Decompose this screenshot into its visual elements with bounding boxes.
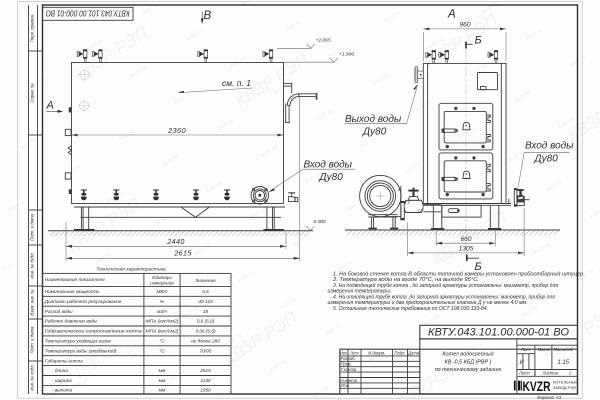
svg-text:ЗАВОД РЭП: ЗАВОД РЭП <box>553 385 576 390</box>
svg-text:Справ. №: Справ. № <box>30 83 35 103</box>
svg-text:А: А <box>46 100 54 112</box>
svg-text:Единицы: Единицы <box>152 275 172 280</box>
svg-text:И: И <box>520 360 525 366</box>
svg-text:Вход воды: Вход воды <box>304 160 353 171</box>
svg-text:Изм.: Изм. <box>340 350 347 355</box>
svg-text:40-110: 40-110 <box>198 299 213 304</box>
svg-text:Формат А3: Формат А3 <box>537 395 562 400</box>
svg-text:KVZR: KVZR <box>523 379 551 394</box>
svg-text:Взам. инв. №: Взам. инв. № <box>30 289 35 316</box>
svg-text:Выход воды: Выход воды <box>345 114 402 125</box>
svg-text:Лист: Лист <box>518 371 530 376</box>
svg-text:0,5: 0,5 <box>202 289 209 294</box>
svg-text:Утв.: Утв. <box>341 383 351 388</box>
svg-text:Ду80: Ду80 <box>534 154 559 165</box>
svg-text:Инв. № подл.: Инв. № подл. <box>30 364 35 391</box>
svg-text:2615: 2615 <box>199 368 211 373</box>
svg-text:Подп.: Подп. <box>394 350 405 355</box>
svg-text:КВТУ.043.101.00.000-01 ВО: КВТУ.043.101.00.000-01 ВО <box>428 327 569 339</box>
svg-text:1305: 1305 <box>459 246 474 253</box>
svg-text:МВт: МВт <box>157 289 168 294</box>
svg-text:Подп. и дата: Подп. и дата <box>30 213 35 241</box>
svg-text:Вход воды: Вход воды <box>525 141 574 152</box>
svg-text:Номинальная мощность: Номинальная мощность <box>45 289 100 294</box>
svg-text:Подп. и дата: Подп. и дата <box>30 326 35 354</box>
svg-text:2360: 2360 <box>167 126 187 135</box>
svg-text:А: А <box>447 9 456 21</box>
svg-text:Дата: Дата <box>407 350 420 355</box>
svg-text:N докум.: N докум. <box>368 350 385 355</box>
svg-text:70/95: 70/95 <box>200 348 212 353</box>
svg-text:КВ -0,5 КБД (РВР ): КВ -0,5 КБД (РВР ) <box>445 359 492 365</box>
svg-text:Температура уходящих газов: Температура уходящих газов <box>45 339 112 344</box>
svg-text:Габариты котла: Габариты котла <box>45 358 83 363</box>
svg-text:КВТУ.043.101.00.000-01 ВО: КВТУ.043.101.00.000-01 ВО <box>46 9 130 18</box>
svg-text:МПа (кгс/см2): МПа (кгс/см2) <box>146 329 179 334</box>
svg-text:измерения: измерения <box>150 280 174 285</box>
svg-text:1: 1 <box>534 371 536 376</box>
svg-text:2615: 2615 <box>173 249 192 258</box>
svg-text:Расход воды: Расход воды <box>45 309 73 314</box>
svg-text:Т.контр.: Т.контр. <box>341 367 358 372</box>
svg-text:°С: °С <box>159 348 165 353</box>
svg-text:Диапазон рабочего регулировани: Диапазон рабочего регулирования <box>44 299 122 304</box>
svg-text:+1.900: +1.900 <box>339 51 354 57</box>
svg-text:Б: Б <box>475 35 482 47</box>
svg-text:Разраб.: Разраб. <box>341 356 356 361</box>
svg-text:м3/ч: м3/ч <box>157 309 167 314</box>
svg-text:18: 18 <box>203 309 209 314</box>
svg-text:Лист: Лист <box>349 350 359 355</box>
svg-text:Н.контр.: Н.контр. <box>341 378 359 383</box>
svg-text:Техническая характеристика: Техническая характеристика <box>96 266 166 272</box>
svg-text:мм: мм <box>159 368 166 373</box>
svg-text:мм: мм <box>159 388 166 393</box>
svg-text:Ду80: Ду80 <box>362 127 387 138</box>
svg-text:Наименование показателя: Наименование показателя <box>45 277 105 282</box>
svg-text:Масса: Масса <box>538 347 551 352</box>
svg-text:°С: °С <box>159 339 165 344</box>
svg-text:1130: 1130 <box>200 378 210 383</box>
svg-text:- ширина: - ширина <box>52 378 72 383</box>
svg-text:Температура воды (вход/выход): Температура воды (вход/выход) <box>45 348 117 353</box>
svg-text:0,06 (0,6): 0,06 (0,6) <box>195 329 216 334</box>
svg-text:В: В <box>204 10 212 22</box>
svg-text:- длина: - длина <box>52 368 68 373</box>
svg-text:Инв. № дубл.: Инв. № дубл. <box>30 252 35 278</box>
svg-text:МПа (кгс/см2): МПа (кгс/см2) <box>146 319 179 324</box>
svg-text:Лит.: Лит. <box>520 347 531 352</box>
svg-text:1950: 1950 <box>200 388 211 393</box>
svg-text:5. Остальные технические треб: 5. Остальные технические требования по О… <box>333 306 488 312</box>
svg-text:660: 660 <box>460 236 471 243</box>
svg-text:не более 280: не более 280 <box>191 339 220 344</box>
svg-text:Гидравлическое сопротивление к: Гидравлическое сопротивление котла <box>45 329 142 334</box>
svg-text:1:15: 1:15 <box>557 360 569 366</box>
svg-text:КОТЕЛЬНЫЙ: КОТЕЛЬНЫЙ <box>553 380 578 385</box>
svg-text:+2.065: +2.065 <box>316 38 331 44</box>
svg-text:960: 960 <box>459 22 470 29</box>
svg-text:Рабочее давление воды: Рабочее давление воды <box>45 319 98 324</box>
svg-text:Перв. примен.: Перв. примен. <box>30 14 35 43</box>
svg-text:Котел водогрейный: Котел водогрейный <box>442 350 493 357</box>
svg-text:по техническому заданию: по техническому заданию <box>435 367 502 373</box>
svg-text:Пров.: Пров. <box>341 362 352 367</box>
svg-text:0.000: 0.000 <box>314 219 327 225</box>
svg-text:Листов: Листов <box>542 371 559 376</box>
svg-text:Масштаб: Масштаб <box>554 347 574 352</box>
svg-text:мм: мм <box>159 378 166 383</box>
svg-text:%: % <box>160 299 164 304</box>
svg-text:0,6 (6,0): 0,6 (6,0) <box>197 319 215 324</box>
svg-text:- высота: - высота <box>52 388 73 393</box>
svg-text:2440: 2440 <box>166 237 185 246</box>
svg-text:Значение: Значение <box>195 278 216 283</box>
svg-text:Ду80: Ду80 <box>319 172 344 183</box>
svg-text:см. п. 1: см. п. 1 <box>222 78 251 88</box>
